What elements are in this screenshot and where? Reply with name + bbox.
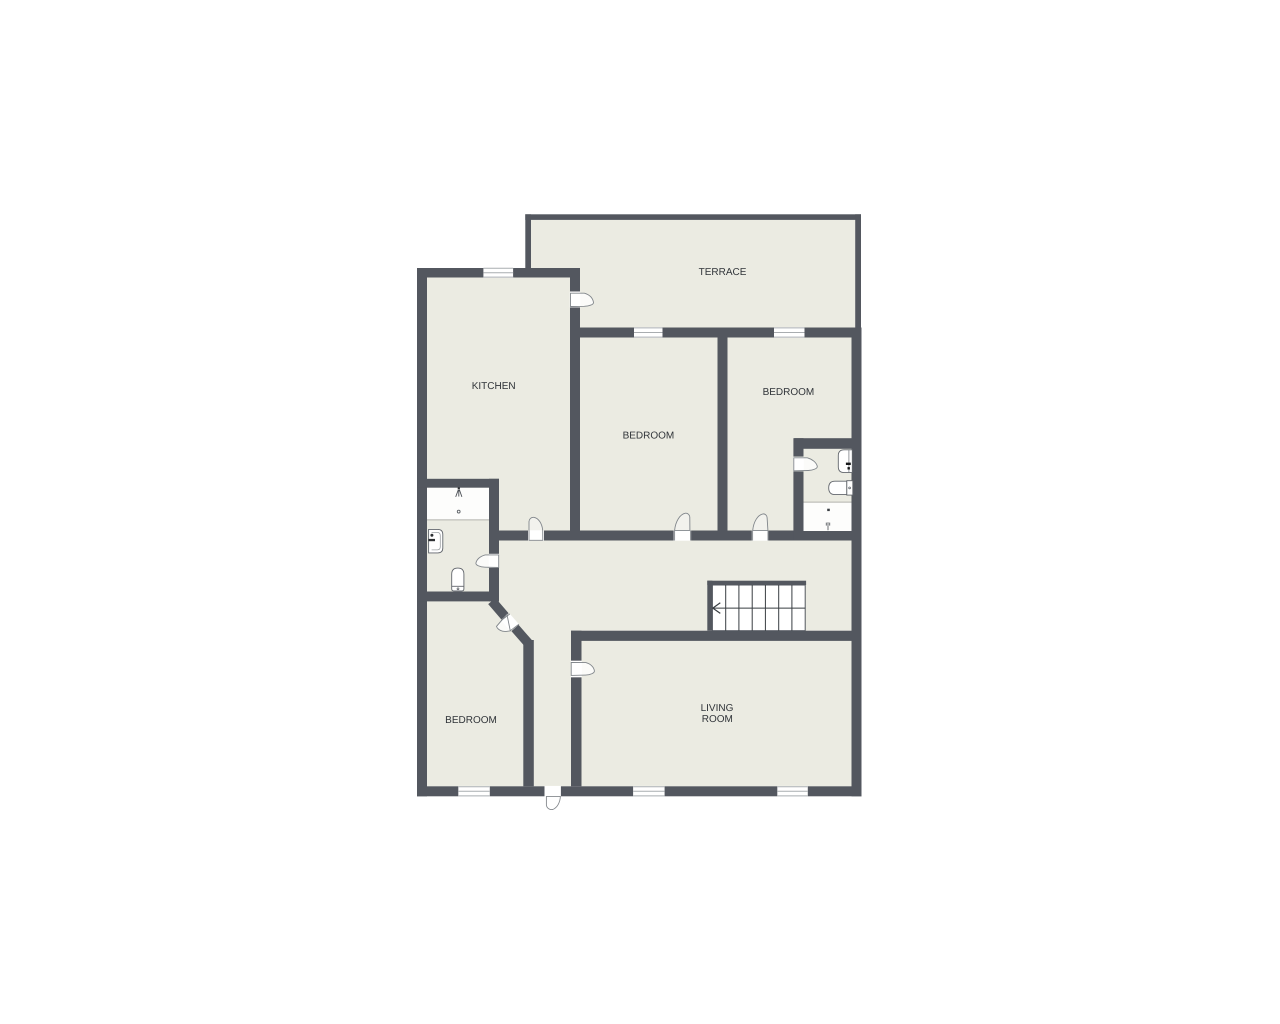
svg-text:KITCHEN: KITCHEN (472, 381, 516, 392)
svg-text:BEDROOM: BEDROOM (623, 430, 675, 441)
svg-text:LIVING: LIVING (701, 703, 734, 714)
svg-text:BEDROOM: BEDROOM (763, 387, 815, 398)
svg-text:TERRACE: TERRACE (699, 267, 747, 278)
svg-text:ROOM: ROOM (702, 714, 733, 725)
svg-text:BEDROOM: BEDROOM (445, 715, 497, 726)
